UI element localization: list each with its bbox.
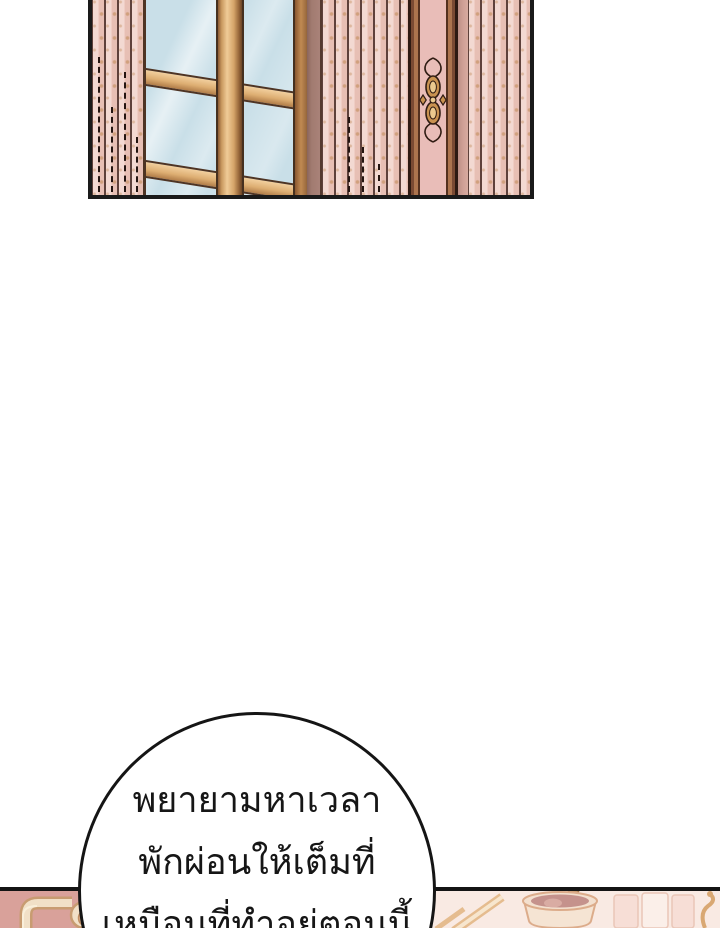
wallpaper-stitch-line — [362, 147, 364, 192]
comic-page: พยายามหาเวลา พักผ่อนให้เต็มที่ เหมือนที่… — [0, 0, 720, 928]
dialogue-line-1: พยายามหาเวลา — [81, 769, 433, 831]
dialogue-line-2: พักผ่อนให้เต็มที่ — [81, 831, 433, 893]
filigree-ornament-icon — [419, 56, 447, 144]
gilt-scroll-icon — [703, 894, 713, 928]
wallpaper-stitch-line — [124, 72, 126, 192]
wallpaper-stitch-line — [348, 117, 350, 192]
wallpaper-middle — [322, 0, 408, 195]
wallpaper-right — [468, 0, 530, 195]
wallpaper-stitch-line — [98, 57, 100, 192]
window-mullion — [216, 0, 244, 195]
speech-bubble-text: พยายามหาเวลา พักผ่อนให้เต็มที่ เหมือนที่… — [81, 769, 433, 928]
dialogue-line-3: เหมือนที่ทำอยู่ตอนนี้ — [81, 893, 433, 928]
wallpaper-stitch-line — [378, 164, 380, 192]
window — [143, 0, 307, 195]
pilaster-side-strip — [458, 0, 468, 195]
wallpaper-left — [92, 0, 143, 195]
window-right-stile — [293, 0, 307, 195]
wallpaper-stitch-line — [111, 107, 113, 192]
wallpaper-stitch-line — [136, 137, 138, 192]
wall-corner-strip — [307, 0, 322, 195]
pilaster — [408, 0, 458, 195]
top-panel — [88, 0, 534, 199]
